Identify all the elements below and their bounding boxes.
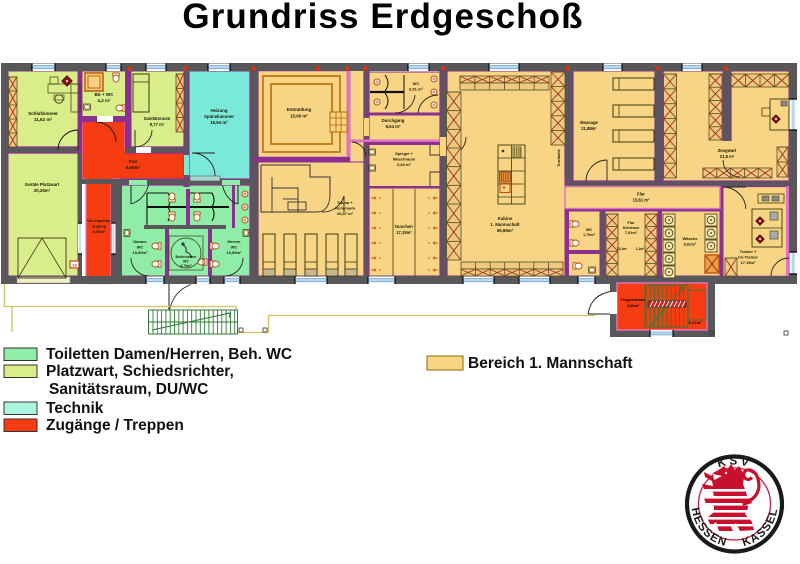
svg-text:10,80m²: 10,80m² xyxy=(133,250,149,255)
svg-text:Behinderten: Behinderten xyxy=(176,255,197,259)
svg-text:Geräte Platzwart: Geräte Platzwart xyxy=(25,182,60,187)
svg-text:Spiegel +: Spiegel + xyxy=(395,151,413,156)
svg-text:10,1m²: 10,1m² xyxy=(617,247,627,251)
svg-text:Zugang: Zugang xyxy=(92,224,107,229)
svg-text:4,2 m²: 4,2 m² xyxy=(97,98,111,103)
svg-text:Zeugwart: Zeugwart xyxy=(718,148,737,153)
svg-text:1,75m²: 1,75m² xyxy=(583,233,596,237)
svg-text:WC: WC xyxy=(586,228,593,232)
svg-text:Sanitätsraum: Sanitätsraum xyxy=(144,116,171,121)
svg-text:Flur: Flur xyxy=(637,192,645,197)
svg-text:Damen: Damen xyxy=(133,239,147,244)
svg-text:10,80m²: 10,80m² xyxy=(227,250,243,255)
svg-text:17,15m²: 17,15m² xyxy=(741,260,757,265)
svg-text:7,51m²: 7,51m² xyxy=(625,231,638,235)
svg-text:Bü + WC: Bü + WC xyxy=(94,92,114,97)
svg-text:13: 13 xyxy=(72,263,77,268)
svg-text:Wäsche: Wäsche xyxy=(682,236,698,241)
svg-text:Flur: Flur xyxy=(129,159,138,164)
svg-text:Schleuse: Schleuse xyxy=(623,226,640,230)
svg-text:Platzwart, Schiedsrichter,: Platzwart, Schiedsrichter, xyxy=(46,363,234,380)
svg-text:9,66m²: 9,66m² xyxy=(126,165,141,170)
svg-text:Heizung: Heizung xyxy=(210,108,227,113)
svg-text:Treppenhaus: Treppenhaus xyxy=(621,297,647,302)
svg-text:Turnhalle: Turnhalle xyxy=(556,148,561,166)
svg-text:WC: WC xyxy=(413,81,420,86)
svg-text:Trainer +: Trainer + xyxy=(740,249,757,254)
svg-text:9,77 m²: 9,77 m² xyxy=(150,122,165,127)
svg-text:11,62 m²: 11,62 m² xyxy=(34,117,53,122)
svg-text:WC: WC xyxy=(183,260,189,264)
svg-text:15,61 m²: 15,61 m² xyxy=(633,198,650,203)
svg-text:Toiletten Damen/Herren, Beh. W: Toiletten Damen/Herren, Beh. WC xyxy=(46,346,292,363)
svg-text:15,06 m²: 15,06 m² xyxy=(290,114,308,119)
svg-text:15,94 m²: 15,94 m² xyxy=(210,120,228,125)
svg-text:WC: WC xyxy=(137,245,144,250)
svg-text:Überdachter: Überdachter xyxy=(87,218,111,223)
svg-text:5,56m²: 5,56m² xyxy=(93,229,106,234)
svg-text:1. Mannschaft: 1. Mannschaft xyxy=(490,222,520,227)
svg-text:56,96m²: 56,96m² xyxy=(497,228,514,233)
svg-text:Waschraum: Waschraum xyxy=(393,157,416,162)
svg-text:Schlafzimmer: Schlafzimmer xyxy=(28,111,58,116)
svg-text:Co-Trainer: Co-Trainer xyxy=(738,255,758,260)
svg-text:Grundriss Erdgeschoß: Grundriss Erdgeschoß xyxy=(182,0,583,36)
svg-text:Technik: Technik xyxy=(46,400,104,417)
svg-text:Flur: Flur xyxy=(627,221,635,225)
svg-text:Herren: Herren xyxy=(228,239,241,244)
svg-text:Sanitätsraum, DU/WC: Sanitätsraum, DU/WC xyxy=(49,381,208,398)
svg-text:21,9 m²: 21,9 m² xyxy=(720,154,735,159)
svg-text:Entmüdung: Entmüdung xyxy=(287,107,312,112)
svg-text:26,87 m²: 26,87 m² xyxy=(337,211,354,216)
svg-text:20,26m²: 20,26m² xyxy=(34,188,51,193)
svg-text:6,94 m²: 6,94 m² xyxy=(397,162,411,167)
svg-text:6,51 m²: 6,51 m² xyxy=(409,87,423,92)
svg-text:5,17m²: 5,17m² xyxy=(689,320,702,325)
svg-text:17,15m²: 17,15m² xyxy=(396,230,412,235)
svg-text:Durchgang: Durchgang xyxy=(382,118,405,123)
svg-text:WC: WC xyxy=(231,245,238,250)
svg-text:8,64 m²: 8,64 m² xyxy=(386,124,401,129)
svg-text:Massage: Massage xyxy=(580,120,598,125)
svg-text:4,66m²: 4,66m² xyxy=(627,303,640,308)
svg-text:Bereich 1. Mannschaft: Bereich 1. Mannschaft xyxy=(468,355,633,372)
svg-text:8,62m²: 8,62m² xyxy=(684,242,697,247)
svg-text:Spänekammer: Spänekammer xyxy=(204,114,234,119)
svg-text:Kabine: Kabine xyxy=(498,216,513,221)
svg-text:Duschen: Duschen xyxy=(395,224,413,229)
svg-text:Zugänge / Treppen: Zugänge / Treppen xyxy=(46,417,184,434)
svg-text:21,88m²: 21,88m² xyxy=(581,126,597,131)
svg-text:4,73m²: 4,73m² xyxy=(180,264,192,268)
svg-text:1,1m²: 1,1m² xyxy=(636,247,644,251)
